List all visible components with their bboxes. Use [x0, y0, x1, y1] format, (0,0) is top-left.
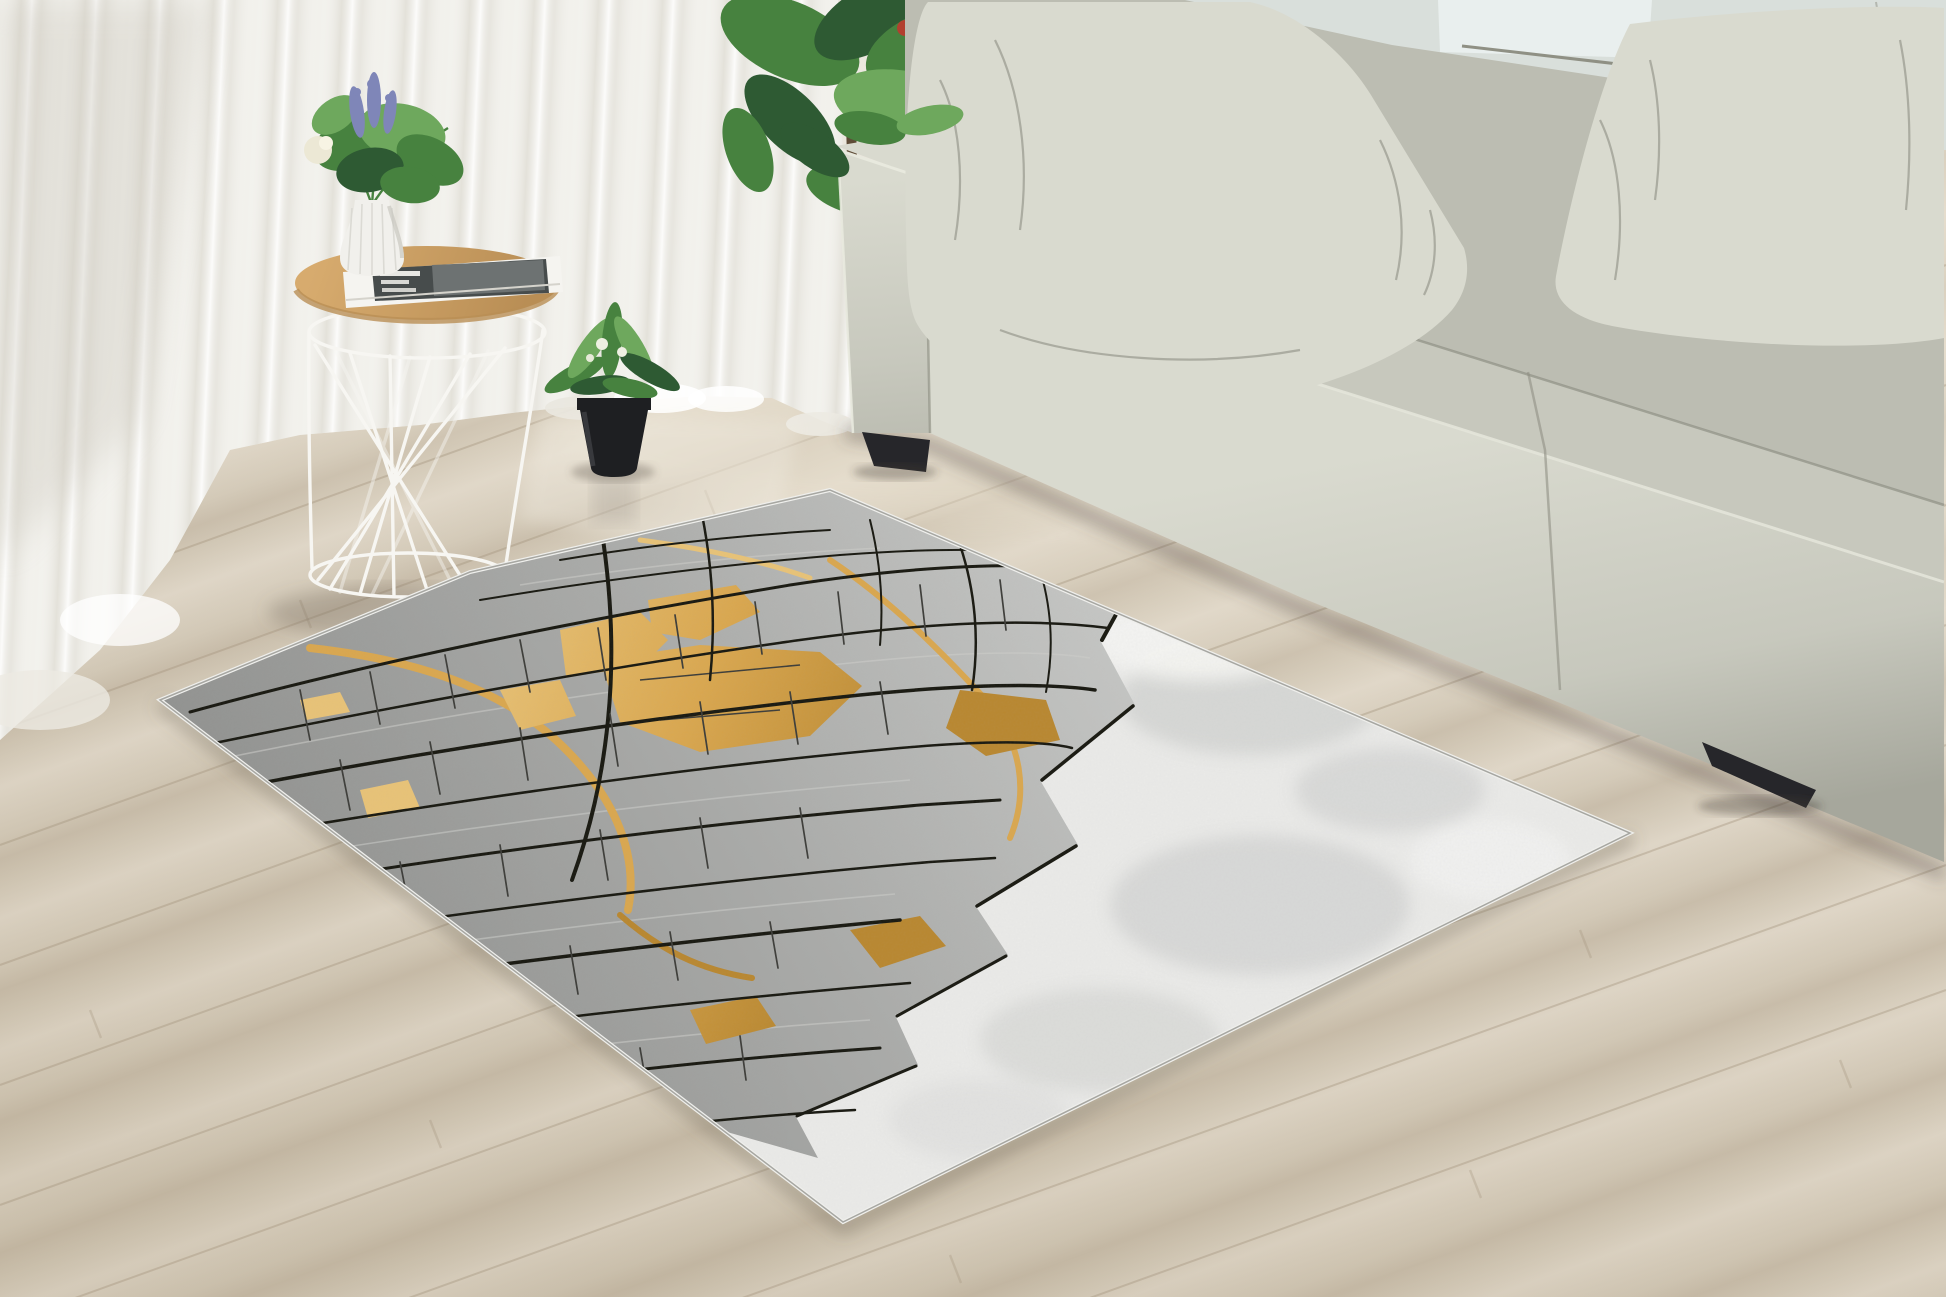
photo-stage [0, 0, 1946, 1297]
curtain-hem-pool [60, 594, 180, 646]
magazine-cover-photo [432, 260, 545, 296]
magazine-cover-text-bar [381, 280, 409, 284]
sofa-foot-shadow [1698, 796, 1822, 816]
lavender-bud [385, 94, 393, 102]
magazine-cover-text-bar [382, 288, 416, 292]
lavender-bud [353, 88, 361, 96]
rose-flower-highlight [319, 136, 333, 150]
sofa-foot-shadow [853, 464, 937, 480]
small-white-flower [617, 347, 627, 357]
pot-rim [577, 398, 651, 410]
pot-reflection [592, 472, 636, 524]
living-room-photo [0, 0, 1946, 1297]
small-white-flower [586, 354, 594, 362]
lavender-bud [367, 79, 377, 89]
curtain-hem-fold [688, 386, 764, 412]
small-white-flower [596, 338, 608, 350]
